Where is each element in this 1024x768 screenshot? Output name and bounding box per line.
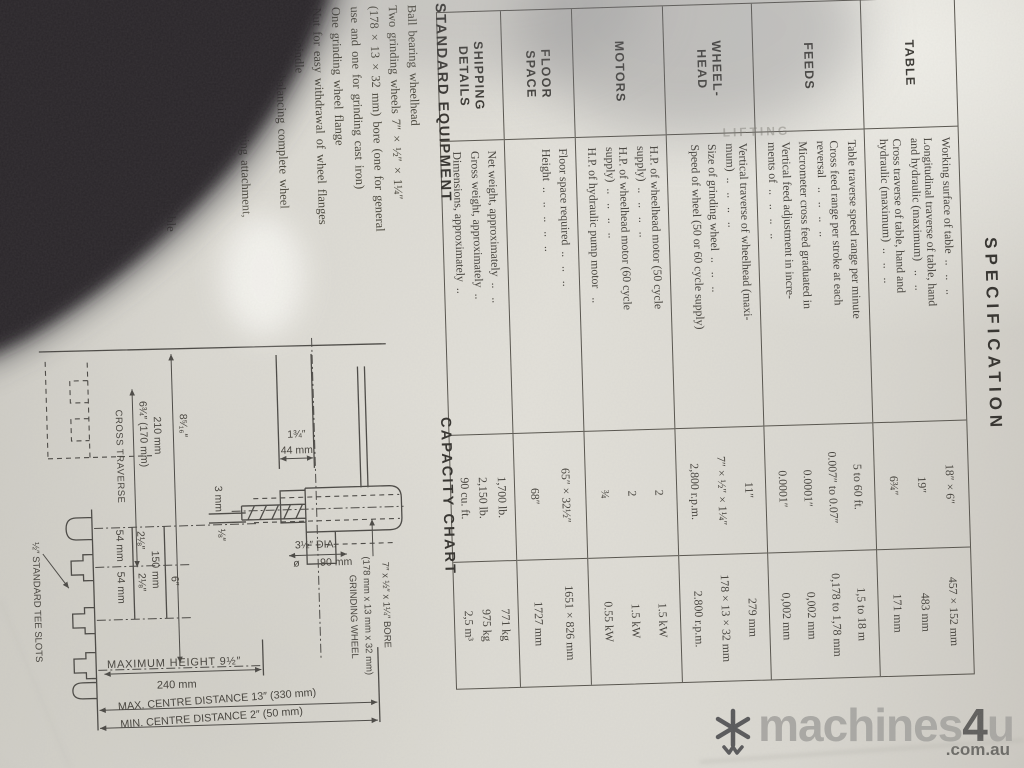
spec-item: Cross feed range per stroke at eachrever…: [813, 140, 848, 418]
section-descriptions: Table traverse speed range per minuteCro…: [756, 129, 872, 426]
section-name: MOTORS: [572, 6, 666, 138]
label-cross-traverse-value: 6¾″ (170 mm): [136, 401, 150, 467]
label-max-height-mm: 240 mm: [157, 678, 197, 691]
label-grinding-wheel: GRINDING WHEEL: [347, 575, 360, 659]
metric-value: 457 × 152 mm: [945, 577, 962, 647]
dim-vertical-traverse: [171, 354, 180, 663]
imperial-value: 0.0001″: [775, 470, 791, 508]
spec-item: H.P. of wheelhead motor (50 cyclesupply)…: [633, 145, 668, 423]
section-name: TABLE: [861, 0, 958, 129]
spec-item: Table traverse speed range per minute: [844, 140, 866, 417]
standard-equipment-list: Ball bearing wheelheadTwo grinding wheel…: [117, 5, 431, 354]
photographed-spec-page: SPECIFICATION TABLEWorking surface of ta…: [0, 0, 1024, 768]
imperial-value: 11″: [741, 482, 756, 499]
section-metric-values: 457 × 152 mm483 mm171 mm: [877, 547, 974, 677]
metric-value: 171 mm: [889, 593, 905, 632]
imperial-value: 0.0001″: [800, 469, 816, 507]
dim-column-width: [280, 458, 313, 459]
print-through-ghost-text: LIFTING: [722, 124, 790, 140]
metric-value: 1.5 kW: [628, 603, 644, 638]
imperial-value: 68″: [528, 488, 543, 505]
metric-value: 0,178 to 1,78 mm: [828, 573, 845, 657]
metric-value: 483 mm: [917, 593, 933, 632]
spec-item: H.P. of wheelhead motor (60 cyclesupply)…: [602, 146, 637, 424]
section-name: WHEEL-HEAD: [663, 4, 755, 136]
tee-slot-leader: [43, 553, 69, 589]
section-descriptions: H.P. of wheelhead motor (50 cyclesupply)…: [576, 135, 675, 432]
machines4u-logo-icon: [712, 707, 754, 755]
imperial-value: 19″: [914, 476, 929, 493]
section-descriptions: Vertical traverse of wheelhead (maxi-mum…: [667, 133, 764, 429]
machines4u-watermark: machines4u .com.au: [712, 703, 1014, 760]
label-dia-symbol: ø: [293, 557, 300, 569]
label-wheel-size-mm: (178 mm x 13 mm x 32 mm): [360, 556, 375, 675]
metric-value: 1651 × 826 mm: [561, 585, 578, 661]
metric-value: 1.5 kW: [655, 603, 671, 638]
label-slot-pitch-mm-2: 54 mm: [114, 572, 127, 605]
label-span-mm: 150 mm: [149, 550, 162, 589]
spec-item: Net weight, approximately .. ..: [485, 150, 507, 427]
watermark-brand: machines: [758, 699, 962, 751]
spec-section-feeds: FEEDSTable traverse speed range per minu…: [752, 0, 881, 679]
imperial-value: 2,800 r.p.m.: [687, 463, 704, 520]
spec-item: Vertical feed adjustment in incre-ments …: [764, 142, 799, 420]
metric-value: 1,5 to 18 m: [853, 587, 870, 641]
label-cross-traverse-name: CROSS TRAVERSE: [113, 410, 127, 504]
watermark-text: machines4u .com.au: [758, 703, 1014, 760]
label-vertical-traverse-mm: 210 mm: [151, 416, 164, 455]
metric-value: 2.800 r.p.m.: [691, 590, 708, 647]
metric-value: 178 × 13 × 32 mm: [717, 574, 735, 662]
wheel-note-leader: [372, 519, 373, 556]
page-tilt-wrapper: SPECIFICATION TABLEWorking surface of ta…: [0, 0, 1024, 768]
imperial-value: 0.007″ to 0.07″: [824, 451, 841, 524]
spec-item: Longitudinal traverse of table, handand …: [907, 137, 942, 415]
metric-value: 975 kg: [479, 609, 495, 642]
label-slot-pitch-mm-1: 54 mm: [113, 530, 126, 563]
imperial-value: 2,150 lb.: [475, 477, 491, 519]
metric-value: 279 mm: [744, 598, 760, 637]
imperial-value: 5 to 60 ft.: [850, 464, 866, 510]
spec-item: Floor space required .. .. ..: [556, 148, 578, 425]
label-max-height: MAXIMUM HEIGHT 9½″: [107, 655, 242, 671]
section-metric-values: 1,5 to 18 m0,178 to 1,78 mm0,002 mm0,002…: [769, 550, 880, 680]
imperial-value: 6¾″: [886, 476, 902, 496]
metric-value: 771 kg: [497, 608, 513, 641]
section-name: FEEDS: [752, 1, 863, 133]
label-dia-mm: 90 mm: [320, 556, 353, 569]
imperial-value: 65″ × 32½″: [558, 468, 575, 523]
label-column-width-mm: 44 mm: [281, 444, 314, 457]
section-metric-values: 279 mm178 × 13 × 32 mm2.800 r.p.m.: [680, 553, 772, 683]
label-tee-slots: ½″ STANDARD TEE SLOTS: [29, 542, 44, 662]
section-imperial-values: 5 to 60 ft.0.007″ to 0.07″0.0001″0.0001″: [765, 423, 876, 553]
label-step-in: ⅛″: [215, 529, 227, 542]
imperial-value: ¾: [597, 490, 612, 499]
label-slot-pitch-in-1: 2⅛″: [134, 531, 147, 550]
page-title: SPECIFICATION: [973, 0, 1013, 674]
diagram-centrelines: [89, 335, 409, 670]
watermark-suffix: u: [987, 699, 1014, 751]
imperial-value: 1,700 lb.: [494, 476, 510, 518]
metric-value: 0.55 kW: [600, 601, 616, 642]
metric-value: 0,002 mm: [779, 592, 795, 640]
section-metric-values: 1651 × 826 mm1727 mm: [518, 559, 592, 688]
label-column-width-in: 1¾″: [287, 428, 306, 441]
label-wheel-size: 7″ x ½″ x 1¼″ BORE: [379, 562, 393, 648]
metric-value: 0,002 mm: [804, 592, 820, 640]
label-slot-pitch-in-2: 2⅛″: [135, 573, 148, 592]
section-imperial-values: 18″ × 6″19″6¾″: [873, 421, 970, 551]
label-span-in: 6″: [169, 576, 181, 586]
section-descriptions: Working surface of table .. .. ..Longitu…: [865, 127, 967, 424]
imperial-value: 7″ × ½″ × 1¼″: [713, 456, 730, 526]
imperial-value: 2: [651, 490, 666, 496]
capacity-chart-diagram: 1¾″ 44 mm 3½″ DIA. ø 90 mm MAXIMUM HEIGH…: [13, 326, 475, 764]
section-descriptions: Floor space required .. .. ..Height .. .…: [505, 138, 584, 434]
section-imperial-values: 11″7″ × ½″ × 1¼″2,800 r.p.m.: [676, 427, 768, 557]
label-step-mm: 3 mm: [212, 486, 225, 513]
section-imperial-values: 22¾: [585, 429, 679, 559]
metric-value: 1727 mm: [531, 601, 547, 646]
label-dia-in: 3½″ DIA.: [295, 538, 337, 551]
spec-item: Vertical traverse of wheelhead (maxi-mum…: [722, 143, 757, 421]
section-name: FLOORSPACE: [501, 9, 575, 140]
label-vertical-traverse-in: 8⁵⁄₁₆″: [177, 414, 190, 438]
imperial-value: 18″ × 6″: [942, 464, 958, 505]
specification-table: TABLEWorking surface of table .. .. ..Lo…: [436, 0, 974, 690]
imperial-value: 2: [624, 490, 639, 496]
spec-item: Cross traverse of table, hand andhydraul…: [876, 138, 911, 416]
section-metric-values: 1.5 kW1.5 kW0.55 kW: [589, 556, 683, 686]
spec-item: Working surface of table .. .. ..: [938, 137, 960, 414]
section-imperial-values: 65″ × 32½″68″: [514, 432, 588, 561]
